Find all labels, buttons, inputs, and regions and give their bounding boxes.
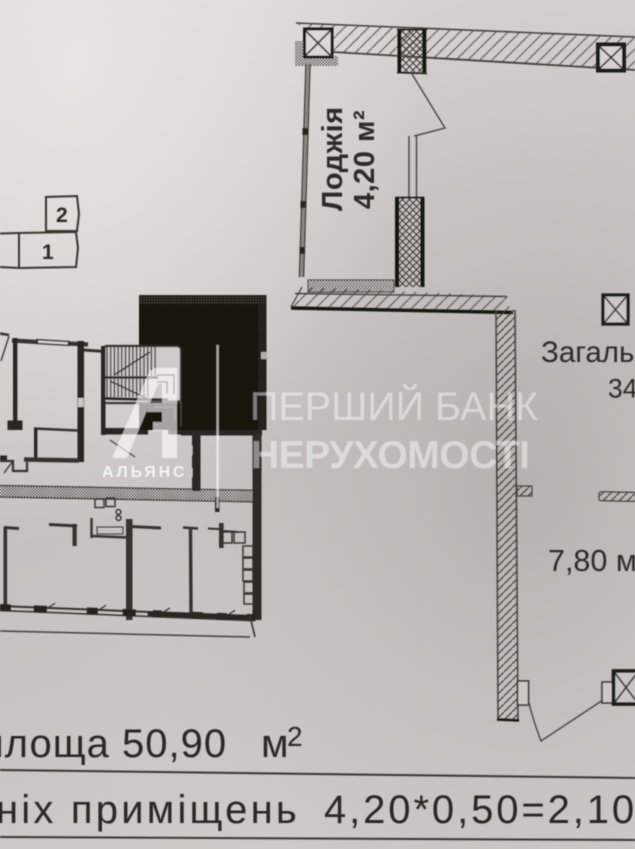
svg-text:площа 50,90: площа 50,90	[0, 722, 227, 766]
svg-text:Лоджія: Лоджія	[317, 106, 349, 211]
svg-text:ПЕРШИЙ БАНК: ПЕРШИЙ БАНК	[250, 384, 538, 429]
svg-text:НЕРУХОМОСТІ: НЕРУХОМОСТІ	[251, 434, 529, 477]
svg-text:4,20 м²: 4,20 м²	[349, 110, 381, 209]
svg-text:1: 1	[42, 241, 54, 264]
svg-text:2: 2	[287, 721, 303, 752]
svg-text:Загальна: Загальна	[541, 336, 635, 369]
svg-text:7,80 м²: 7,80 м²	[548, 544, 635, 578]
svg-text:м: м	[261, 722, 289, 766]
svg-text:ніх приміщень: ніх приміщень	[0, 788, 300, 832]
svg-text:34,: 34,	[608, 374, 635, 404]
svg-text:АЛЬЯНС: АЛЬЯНС	[102, 464, 187, 481]
svg-text:4,20*0,50=2,10: 4,20*0,50=2,10	[324, 788, 635, 832]
svg-text:2: 2	[56, 204, 68, 227]
